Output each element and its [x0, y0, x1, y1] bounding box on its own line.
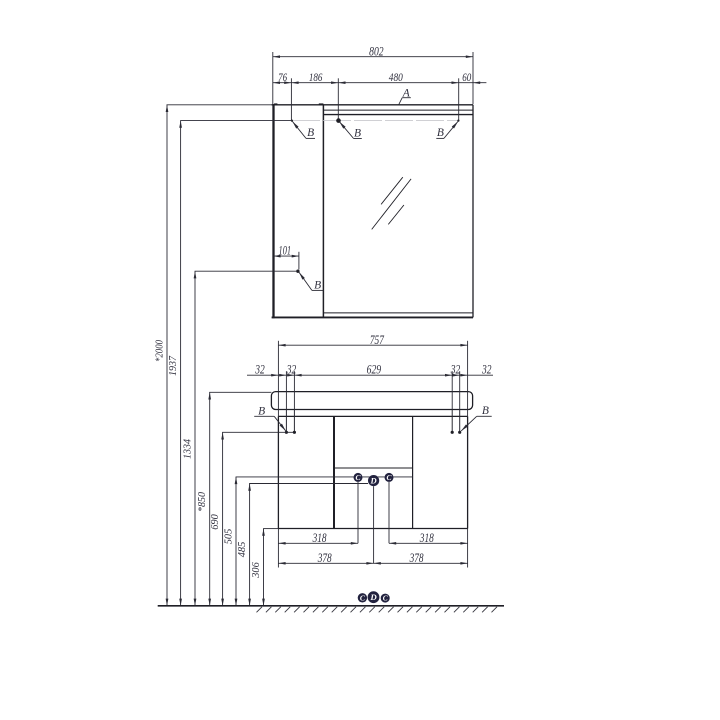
svg-text:101: 101	[279, 244, 292, 258]
svg-text:32: 32	[254, 362, 264, 376]
svg-text:378: 378	[317, 551, 332, 565]
svg-text:B: B	[482, 405, 489, 417]
svg-text:1937: 1937	[168, 355, 179, 376]
svg-text:480: 480	[389, 70, 403, 84]
svg-text:B: B	[437, 127, 444, 139]
svg-text:690: 690	[210, 514, 221, 530]
svg-text:B: B	[314, 279, 321, 291]
svg-text:629: 629	[367, 362, 382, 377]
svg-text:B: B	[258, 405, 265, 417]
svg-text:76: 76	[278, 70, 287, 84]
svg-text:32: 32	[481, 362, 491, 376]
svg-text:186: 186	[309, 70, 323, 84]
svg-text:C: C	[383, 594, 388, 603]
svg-text:*850: *850	[197, 491, 208, 512]
svg-text:*2000: *2000	[154, 339, 165, 362]
svg-text:1334: 1334	[182, 438, 193, 459]
svg-text:B: B	[307, 127, 314, 139]
svg-text:32: 32	[450, 362, 460, 376]
svg-text:B: B	[354, 128, 361, 140]
svg-text:757: 757	[370, 332, 384, 347]
svg-text:318: 318	[419, 531, 434, 545]
svg-text:D: D	[370, 475, 377, 485]
svg-text:485: 485	[237, 542, 248, 558]
svg-text:378: 378	[409, 551, 424, 565]
svg-text:318: 318	[312, 531, 327, 545]
svg-text:60: 60	[462, 70, 471, 84]
svg-text:306: 306	[251, 562, 262, 579]
svg-text:802: 802	[369, 44, 384, 59]
svg-text:32: 32	[286, 362, 296, 376]
svg-text:505: 505	[223, 529, 234, 545]
svg-text:D: D	[369, 592, 377, 602]
